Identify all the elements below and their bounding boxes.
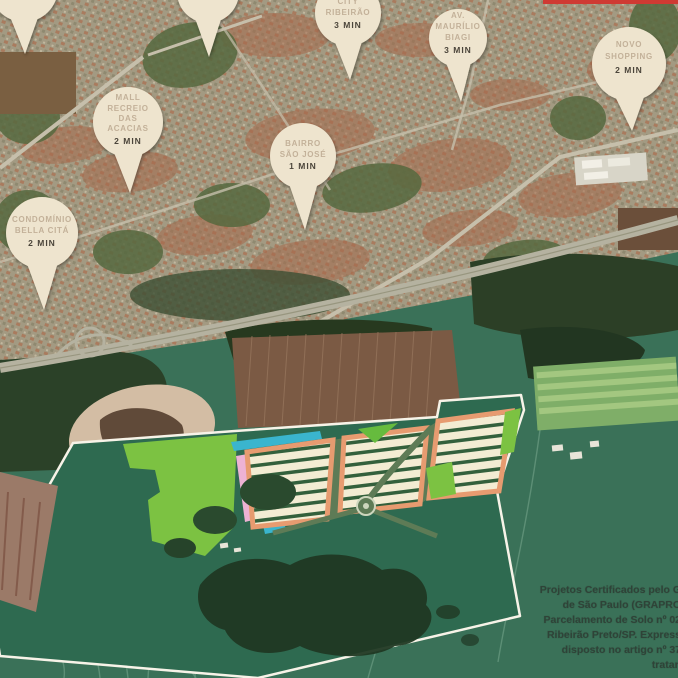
pin-label: BAIRRO (285, 139, 321, 148)
pin-balloon (592, 27, 666, 101)
legal-line: Ribeirão Preto/SP. Express (540, 628, 678, 643)
pin-time: 3 MIN (334, 20, 362, 30)
pin-time: 2 MIN (114, 136, 142, 146)
pin-label: MALL (115, 93, 140, 102)
pin-label: BIAGI (445, 33, 471, 42)
legal-line: tratan (540, 658, 678, 673)
pin-label: RECREIO (107, 104, 148, 113)
pin-label: MAURÍLIO (435, 22, 480, 31)
green-patch-right (426, 462, 456, 499)
pin-time: 2 MIN (28, 238, 56, 248)
legal-line: de São Paulo (GRAPRO (540, 598, 678, 613)
pin-label: SÃO JOSÉ (280, 150, 327, 159)
legal-line: Projetos Certificados pelo G (540, 583, 678, 598)
housing-block-middle (340, 428, 427, 513)
legal-line: Parcelamento de Solo nº 02 (540, 613, 678, 628)
pin-label: AV. (451, 11, 465, 20)
pin-time: 3 MIN (444, 45, 472, 55)
pin-time: 2 MIN (615, 65, 643, 75)
pin-label: RIBEIRÃO (326, 8, 371, 17)
tilled-field-top-left (0, 52, 76, 114)
pin-label: BELLA CITÁ (15, 226, 69, 235)
red-banner (543, 0, 678, 4)
aerial-marketing-map: CITYRIBEIRÃO3 MINAV.MAURÍLIOBIAGI3 MINNO… (0, 0, 678, 678)
tilled-field-center (232, 330, 462, 428)
satellite-map-image: CITYRIBEIRÃO3 MINAV.MAURÍLIOBIAGI3 MINNO… (0, 0, 678, 678)
pin-label: NOVO (616, 40, 642, 49)
pin-label: CITY (337, 0, 358, 6)
pin-label: ACACIAS (107, 124, 148, 133)
striped-fields-right (533, 357, 678, 431)
pin-label: SHOPPING (605, 52, 653, 61)
roundabout-center (363, 503, 369, 509)
industrial-sheds (574, 152, 648, 185)
legal-text: Projetos Certificados pelo Gde São Paulo… (540, 583, 678, 673)
pin-label: DAS (119, 114, 138, 123)
pin-label: CONDOMÍNIO (12, 215, 72, 224)
legal-line: disposto no artigo nº 37 (540, 643, 678, 658)
pin-time: 1 MIN (289, 161, 317, 171)
